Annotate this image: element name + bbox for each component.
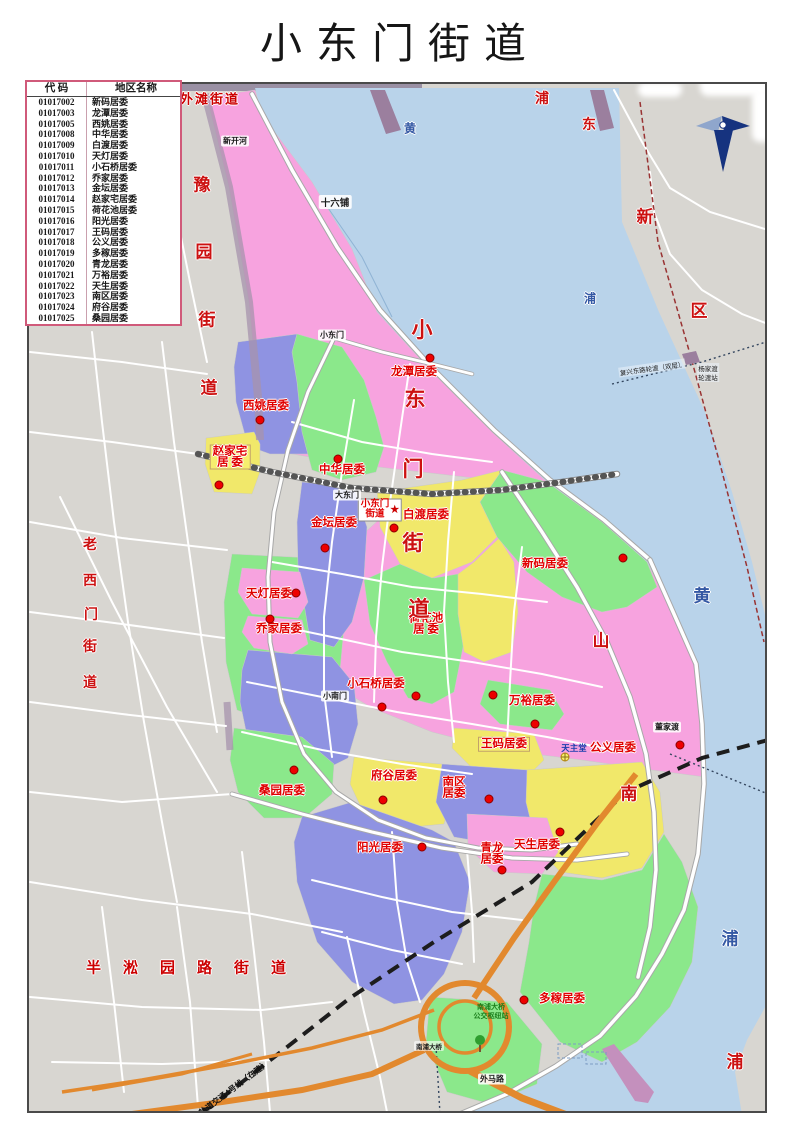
map-text-label: 外马路 bbox=[478, 1074, 506, 1085]
compass-icon bbox=[696, 116, 750, 172]
committee-office-dot bbox=[256, 416, 265, 425]
committee-office-dot bbox=[290, 766, 299, 775]
map-text-label: 南浦大桥 bbox=[414, 1041, 444, 1051]
legend-header-code: 代 码 bbox=[27, 82, 87, 96]
district-label: 乔家居委 bbox=[256, 624, 302, 635]
district-label: 天生居委 bbox=[514, 840, 560, 851]
legend-row: 01017020青龙居委 bbox=[27, 259, 180, 270]
committee-office-dot bbox=[292, 589, 301, 598]
committee-office-dot bbox=[531, 720, 540, 729]
map-text-label: 小东门 bbox=[318, 330, 346, 341]
legend-rows: 01017002新码居委01017003龙潭居委01017005西姚居委0101… bbox=[27, 97, 180, 324]
legend-row: 01017017王码居委 bbox=[27, 227, 180, 238]
area-name-char: 小 bbox=[412, 314, 433, 344]
legend-area-name: 万裕居委 bbox=[87, 270, 180, 281]
area-name-char: 街 bbox=[83, 636, 97, 656]
legend-code: 01017014 bbox=[27, 194, 87, 205]
district-label: 西姚居委 bbox=[243, 401, 289, 412]
legend-code: 01017015 bbox=[27, 205, 87, 216]
legend-code: 01017009 bbox=[27, 140, 87, 151]
legend-code: 01017013 bbox=[27, 183, 87, 194]
map-text-label: 新开河 bbox=[221, 136, 249, 147]
district-label: 南区居委 bbox=[443, 778, 466, 799]
legend-row: 01017009白渡居委 bbox=[27, 140, 180, 151]
district-label: 府谷居委 bbox=[371, 771, 417, 782]
district-label: 桑园居委 bbox=[259, 786, 305, 797]
district-label: 青龙居委 bbox=[481, 844, 504, 865]
area-name-char: 老 bbox=[83, 534, 97, 554]
boundary-band-w bbox=[227, 702, 230, 750]
legend-area-name: 青龙居委 bbox=[87, 259, 180, 270]
legend-area-name: 天生居委 bbox=[87, 281, 180, 292]
area-name-char: 西 bbox=[83, 570, 97, 590]
legend-row: 01017021万裕居委 bbox=[27, 270, 180, 281]
legend-area-name: 赵家宅居委 bbox=[87, 194, 180, 205]
area-name-char: 南 bbox=[621, 780, 638, 805]
legend-area-name: 龙潭居委 bbox=[87, 108, 180, 119]
district-label: 阳光居委 bbox=[357, 843, 403, 854]
legend-area-name: 新码居委 bbox=[87, 97, 180, 108]
legend-header-name: 地区名称 bbox=[87, 82, 180, 96]
legend-area-name: 金坛居委 bbox=[87, 183, 180, 194]
legend-table: 代 码 地区名称 01017002新码居委01017003龙潭居委0101700… bbox=[25, 80, 182, 326]
legend-row: 01017019多稼居委 bbox=[27, 248, 180, 259]
legend-code: 01017023 bbox=[27, 291, 87, 302]
committee-office-dot bbox=[498, 866, 507, 875]
area-name-char: 新 bbox=[637, 203, 654, 228]
legend-area-name: 乔家居委 bbox=[87, 173, 180, 184]
legend-code: 01017002 bbox=[27, 97, 87, 108]
committee-office-dot bbox=[556, 828, 565, 837]
map-text-label: 小南门 bbox=[321, 691, 349, 702]
district-label: 中华居委 bbox=[319, 465, 365, 476]
legend-code: 01017021 bbox=[27, 270, 87, 281]
legend-code: 01017016 bbox=[27, 216, 87, 227]
legend-code: 01017018 bbox=[27, 237, 87, 248]
legend-row: 01017023南区居委 bbox=[27, 291, 180, 302]
area-name-char: 街 bbox=[403, 527, 424, 557]
district-label: 赵家宅居 委 bbox=[210, 445, 251, 470]
legend-code: 01017011 bbox=[27, 162, 87, 173]
map-text-label: 天主堂 bbox=[561, 742, 587, 754]
area-name-char: 道 bbox=[83, 672, 97, 692]
subdistrict-office-label: 小东门街道★ bbox=[358, 499, 402, 522]
area-name-char: 东 bbox=[405, 383, 426, 413]
legend-area-name: 荷花池居委 bbox=[87, 205, 180, 216]
legend-row: 01017016阳光居委 bbox=[27, 216, 180, 227]
blur-patch bbox=[752, 90, 767, 142]
district-label: 小石桥居委 bbox=[347, 679, 405, 690]
legend-code: 01017025 bbox=[27, 313, 87, 324]
legend-code: 01017024 bbox=[27, 302, 87, 313]
legend-row: 01017005西姚居委 bbox=[27, 119, 180, 130]
district-label: 龙潭居委 bbox=[391, 367, 437, 378]
district-label: 公义居委 bbox=[590, 743, 636, 754]
committee-office-dot bbox=[378, 703, 387, 712]
area-name-char: 街 bbox=[199, 306, 216, 331]
legend-code: 01017020 bbox=[27, 259, 87, 270]
committee-office-dot bbox=[520, 996, 529, 1005]
district-label: 天灯居委 bbox=[246, 589, 292, 600]
committee-office-dot bbox=[418, 843, 427, 852]
district-label: 王码居委 bbox=[478, 737, 530, 752]
area-name-char: 园 bbox=[196, 238, 213, 263]
legend-row: 01017012乔家居委 bbox=[27, 173, 180, 184]
legend-row: 01017003龙潭居委 bbox=[27, 108, 180, 119]
map-text-label: 十六铺 bbox=[319, 195, 352, 209]
legend-row: 01017010天灯居委 bbox=[27, 151, 180, 162]
legend-row: 01017024府谷居委 bbox=[27, 302, 180, 313]
office-star-icon: ★ bbox=[390, 505, 399, 515]
legend-code: 01017019 bbox=[27, 248, 87, 259]
area-name-char: 门 bbox=[403, 453, 424, 483]
area-name-char: 道 bbox=[201, 374, 218, 399]
district-label: 新码居委 bbox=[522, 559, 568, 570]
legend-area-name: 小石桥居委 bbox=[87, 162, 180, 173]
page-title: 小东门街道 bbox=[0, 10, 800, 71]
legend-area-name: 白渡居委 bbox=[87, 140, 180, 151]
church-icon bbox=[561, 753, 569, 761]
map-text-label: 大东门 bbox=[333, 490, 361, 501]
river-name-char: 黄 bbox=[404, 120, 416, 137]
area-name-char: 山 bbox=[593, 627, 610, 652]
river-name-char: 浦 bbox=[584, 290, 596, 307]
district-label: 白渡居委 bbox=[403, 510, 449, 521]
legend-area-name: 桑园居委 bbox=[87, 313, 180, 324]
area-name-char: 浦 bbox=[535, 88, 549, 108]
map-text-label: 董家渡 bbox=[653, 722, 681, 733]
legend-row: 01017014赵家宅居委 bbox=[27, 194, 180, 205]
legend-row: 01017011小石桥居委 bbox=[27, 162, 180, 173]
area-name-char: 东 bbox=[582, 114, 596, 134]
legend-code: 01017017 bbox=[27, 227, 87, 238]
area-name-char: 豫 bbox=[194, 171, 211, 196]
map-text-label: 公交枢纽站 bbox=[474, 1011, 509, 1021]
map-text-label: 轮渡站 bbox=[697, 372, 719, 382]
legend-area-name: 府谷居委 bbox=[87, 302, 180, 313]
legend-code: 01017005 bbox=[27, 119, 87, 130]
committee-office-dot bbox=[215, 481, 224, 490]
legend-row: 01017008中华居委 bbox=[27, 129, 180, 140]
legend-row: 01017022天生居委 bbox=[27, 281, 180, 292]
map-text-label: 外滩街道 bbox=[180, 89, 240, 108]
committee-office-dot bbox=[489, 691, 498, 700]
area-name-char: 道 bbox=[409, 593, 430, 623]
river-name-char: 浦 bbox=[722, 925, 739, 950]
legend-code: 01017008 bbox=[27, 129, 87, 140]
legend-area-name: 天灯居委 bbox=[87, 151, 180, 162]
blur-patch bbox=[638, 82, 682, 97]
legend-row: 01017013金坛居委 bbox=[27, 183, 180, 194]
area-name-char: 区 bbox=[691, 297, 708, 322]
legend-area-name: 中华居委 bbox=[87, 129, 180, 140]
river-name-char: 黄 bbox=[694, 582, 711, 607]
legend-area-name: 阳光居委 bbox=[87, 216, 180, 227]
committee-office-dot bbox=[390, 524, 399, 533]
legend-row: 01017002新码居委 bbox=[27, 97, 180, 108]
legend-row: 01017015荷花池居委 bbox=[27, 205, 180, 216]
area-name-char: 浦 bbox=[727, 1048, 744, 1073]
map-text-label: 半淞园路街道 bbox=[86, 957, 308, 978]
legend-header: 代 码 地区名称 bbox=[27, 82, 180, 97]
committee-office-dot bbox=[412, 692, 421, 701]
legend-row: 01017018公义居委 bbox=[27, 237, 180, 248]
committee-office-dot bbox=[426, 354, 435, 363]
legend-area-name: 西姚居委 bbox=[87, 119, 180, 130]
legend-area-name: 多稼居委 bbox=[87, 248, 180, 259]
area-name-char: 门 bbox=[84, 604, 98, 624]
committee-office-dot bbox=[321, 544, 330, 553]
legend-area-name: 公义居委 bbox=[87, 237, 180, 248]
legend-code: 01017022 bbox=[27, 281, 87, 292]
committee-office-dot bbox=[619, 554, 628, 563]
legend-code: 01017012 bbox=[27, 173, 87, 184]
legend-row: 01017025桑园居委 bbox=[27, 313, 180, 324]
district-label: 金坛居委 bbox=[311, 518, 357, 529]
committee-office-dot bbox=[485, 795, 494, 804]
committee-office-dot bbox=[676, 741, 685, 750]
committee-office-dot bbox=[266, 615, 275, 624]
district-label: 多稼居委 bbox=[539, 994, 585, 1005]
committee-office-dot bbox=[379, 796, 388, 805]
legend-code: 01017003 bbox=[27, 108, 87, 119]
legend-area-name: 王码居委 bbox=[87, 227, 180, 238]
district-label: 万裕居委 bbox=[509, 696, 555, 707]
legend-code: 01017010 bbox=[27, 151, 87, 162]
committee-office-dot bbox=[334, 455, 343, 464]
legend-area-name: 南区居委 bbox=[87, 291, 180, 302]
